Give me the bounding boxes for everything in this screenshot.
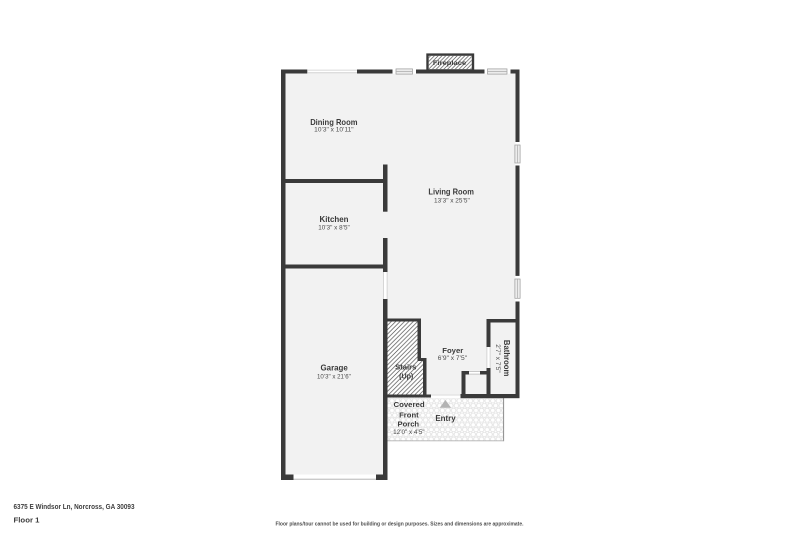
svg-text:Foyer: Foyer xyxy=(442,346,463,355)
svg-text:Fireplace: Fireplace xyxy=(433,60,467,67)
svg-text:12’0" x 4’5": 12’0" x 4’5" xyxy=(393,429,425,436)
svg-text:10’3" x 8’5": 10’3" x 8’5" xyxy=(318,225,350,232)
svg-text:(Up): (Up) xyxy=(399,372,414,381)
svg-text:2’7" x 7’5": 2’7" x 7’5" xyxy=(494,344,501,373)
svg-text:Garage: Garage xyxy=(321,364,349,373)
svg-text:Floor 1: Floor 1 xyxy=(14,517,40,524)
svg-text:Entry: Entry xyxy=(435,414,456,423)
svg-text:10’3" x 10’11": 10’3" x 10’11" xyxy=(314,127,354,134)
svg-text:Kitchen: Kitchen xyxy=(320,214,349,224)
svg-text:Porch: Porch xyxy=(398,420,420,429)
svg-text:Stairs: Stairs xyxy=(395,362,416,371)
svg-text:6’9" x 7’5": 6’9" x 7’5" xyxy=(438,355,468,362)
svg-text:Floor plans/tour cannot be use: Floor plans/tour cannot be used for buil… xyxy=(276,521,525,527)
svg-text:Dining Room: Dining Room xyxy=(310,117,358,127)
svg-text:Living Room: Living Room xyxy=(428,187,474,197)
svg-text:Covered: Covered xyxy=(394,400,425,409)
svg-text:6375 E Windsor Ln, Norcross, G: 6375 E Windsor Ln, Norcross, GA 30093 xyxy=(14,504,135,511)
svg-text:10’3" x 21’6": 10’3" x 21’6" xyxy=(317,373,351,380)
svg-text:13’3" x 25’5": 13’3" x 25’5" xyxy=(434,198,470,205)
svg-text:Front: Front xyxy=(399,410,419,419)
svg-text:Bathroom: Bathroom xyxy=(502,340,511,377)
